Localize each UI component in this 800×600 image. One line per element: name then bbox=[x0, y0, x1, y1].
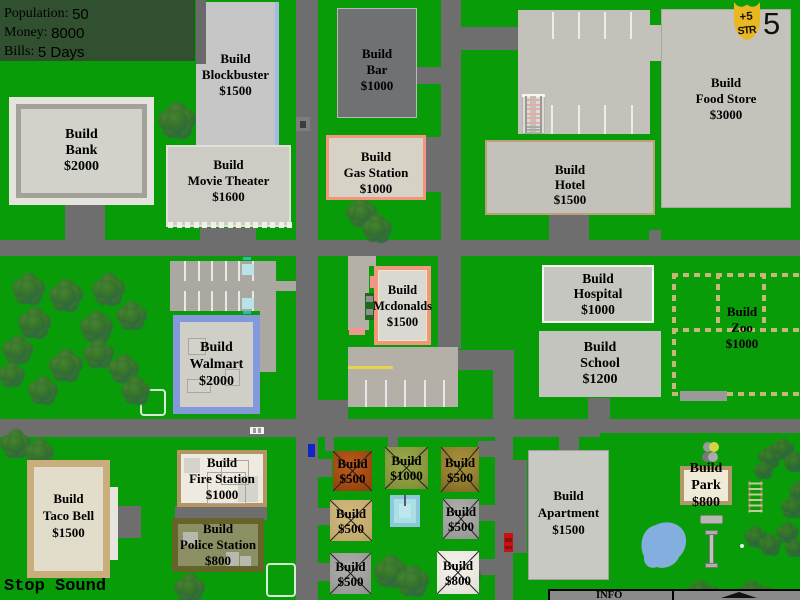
svg-text:+5: +5 bbox=[739, 10, 754, 23]
svg-text:STR: STR bbox=[737, 24, 757, 38]
